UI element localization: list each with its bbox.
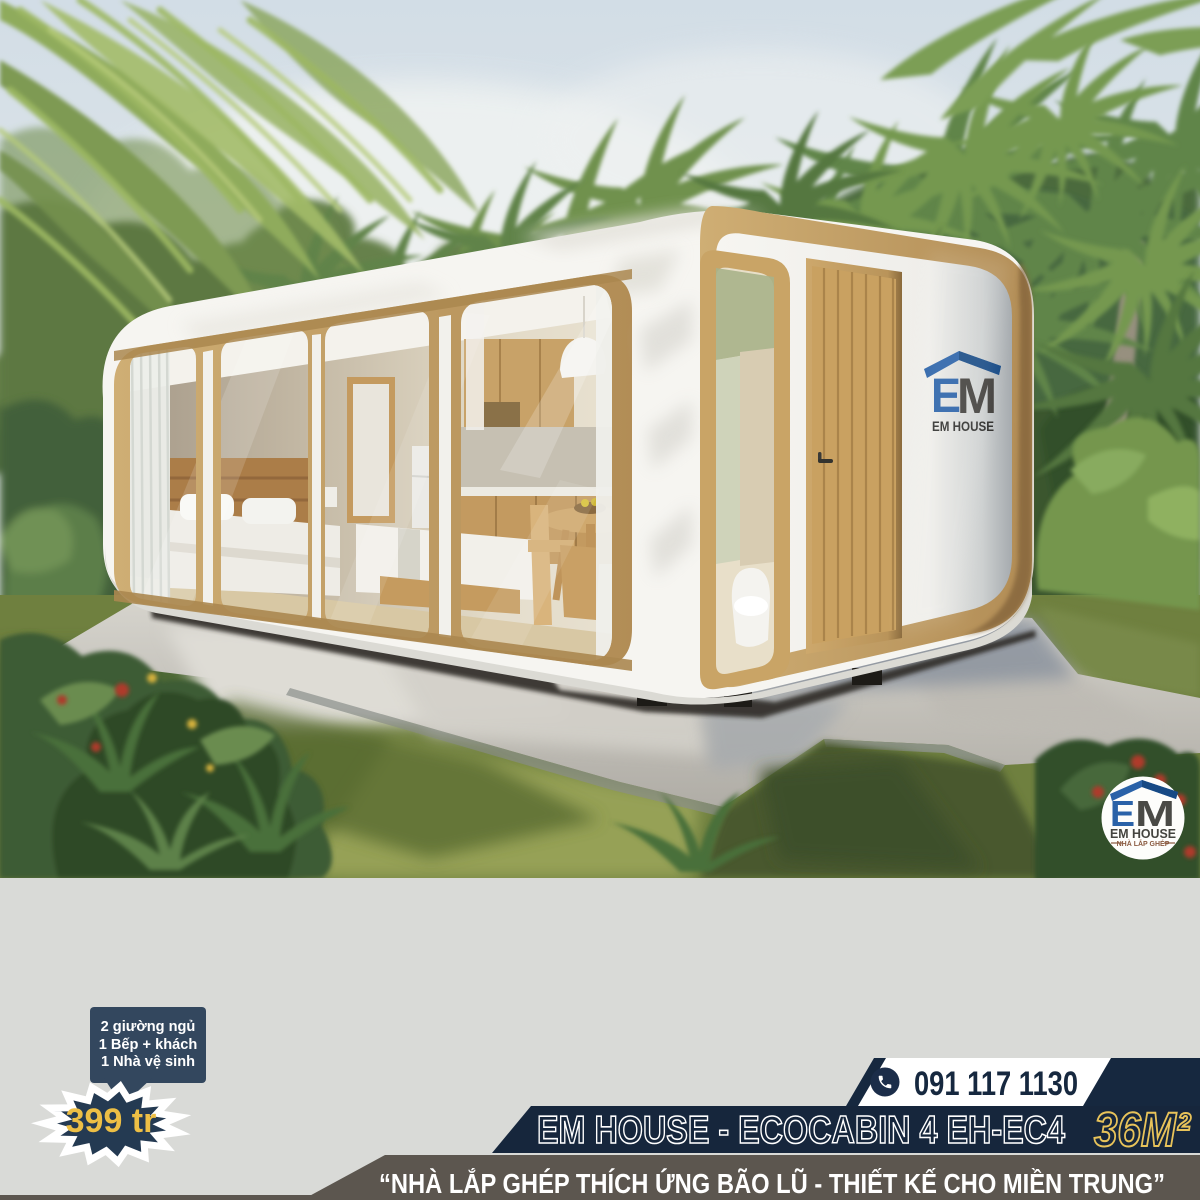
svg-text:EM HOUSE - ECOCABIN 4 EH-EC4: EM HOUSE - ECOCABIN 4 EH-EC4	[537, 1109, 1065, 1152]
svg-text:091 117 1130: 091 117 1130	[914, 1065, 1078, 1103]
svg-text:2 giường ngủ: 2 giường ngủ	[101, 1019, 196, 1035]
svg-text:EM HOUSE: EM HOUSE	[1110, 827, 1176, 841]
svg-text:NHÀ LẮP GHÉP: NHÀ LẮP GHÉP	[1117, 839, 1170, 848]
svg-text:1 Bếp + khách: 1 Bếp + khách	[99, 1037, 198, 1053]
svg-text:“NHÀ LẮP GHÉP THÍCH ỨNG BÃO LŨ: “NHÀ LẮP GHÉP THÍCH ỨNG BÃO LŨ - THIẾT K…	[379, 1168, 1165, 1199]
svg-text:1 Nhà vệ sinh: 1 Nhà vệ sinh	[101, 1054, 195, 1070]
svg-text:36M²: 36M²	[1094, 1104, 1192, 1157]
svg-text:399 tr: 399 tr	[66, 1102, 157, 1140]
